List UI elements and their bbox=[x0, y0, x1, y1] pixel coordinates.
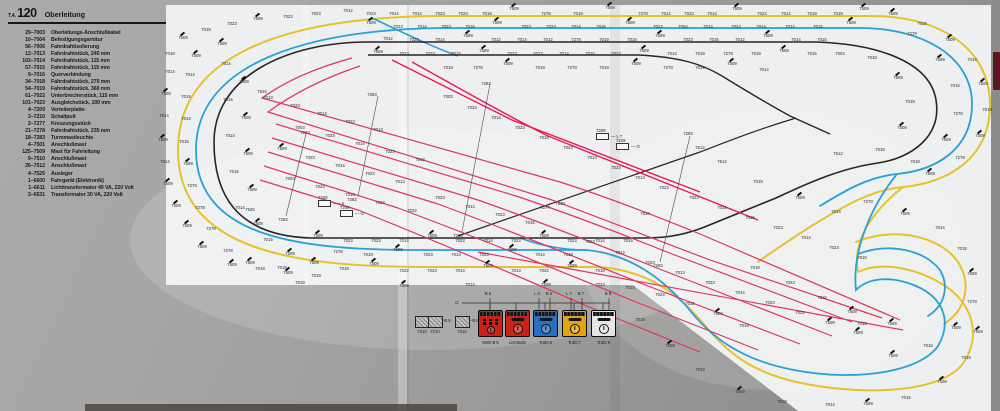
part-label: 7019 bbox=[695, 368, 705, 373]
part-label: 7278 bbox=[638, 12, 648, 17]
part-label: 7019 bbox=[295, 281, 305, 286]
part-label: 7015 bbox=[857, 256, 867, 261]
part-label: 7509 bbox=[639, 49, 649, 54]
part-label: 7283 bbox=[653, 264, 663, 269]
part-label: 7509 bbox=[945, 38, 955, 43]
part-label: 7014 bbox=[435, 38, 445, 43]
part-label: 7023 bbox=[785, 281, 795, 286]
part-label: 7023 bbox=[546, 25, 556, 30]
part-label: 7023 bbox=[290, 104, 300, 109]
part-label: 7013 bbox=[635, 176, 645, 181]
part-label: 7014 bbox=[221, 62, 231, 67]
part-label: 7014 bbox=[165, 70, 175, 75]
part-label: 7018 bbox=[777, 400, 787, 405]
part-label: 7509 bbox=[900, 212, 910, 217]
part-label: 7278 bbox=[333, 250, 343, 255]
part-label: 7019 bbox=[563, 253, 573, 258]
part-label: 7278 bbox=[907, 32, 917, 37]
part-label: 7019 bbox=[753, 180, 763, 185]
part-label: 7014 bbox=[735, 291, 745, 296]
part-label: 7023 bbox=[435, 196, 445, 201]
part-label: 7015 bbox=[229, 170, 239, 175]
part-label: 7509 bbox=[247, 188, 257, 193]
part-label: 7023 bbox=[829, 246, 839, 251]
part-label: 7015 bbox=[685, 302, 695, 307]
part-label: 7018 bbox=[867, 56, 877, 61]
part-label: 7023 bbox=[765, 301, 775, 306]
part-label: 7023 bbox=[283, 15, 293, 20]
part-label: 7283 bbox=[367, 93, 377, 98]
part-label: 7018 bbox=[961, 356, 971, 361]
part-label: 7509 bbox=[975, 134, 985, 139]
part-label: 7012 bbox=[491, 38, 501, 43]
part-label: 7509 bbox=[825, 321, 835, 326]
part-label: 7509 bbox=[853, 331, 863, 336]
part-label: 7278 bbox=[567, 66, 577, 71]
part-label: 7509 bbox=[241, 116, 251, 121]
part-label: 7023 bbox=[495, 213, 505, 218]
part-label: 7019 bbox=[751, 52, 761, 57]
part-label: 7278 bbox=[541, 12, 551, 17]
part-label: 7012 bbox=[343, 9, 353, 14]
part-label: 7023 bbox=[659, 186, 669, 191]
part-label: 7023 bbox=[343, 239, 353, 244]
part-label: 7023 bbox=[515, 126, 525, 131]
part-label: 7509 bbox=[492, 21, 502, 26]
part-label: 7278 bbox=[195, 206, 205, 211]
part-label: 7022 bbox=[399, 269, 409, 274]
part-label: 7018 bbox=[255, 267, 265, 272]
part-label: 7509 bbox=[217, 42, 227, 47]
part-label: 7512 bbox=[695, 146, 705, 151]
part-label: 7012 bbox=[785, 25, 795, 30]
part-label: 7012 bbox=[383, 37, 393, 42]
part-label: 7014 bbox=[185, 73, 195, 78]
part-label: 7018 bbox=[917, 22, 927, 27]
part-label: 7023 bbox=[731, 25, 741, 30]
part-label: 7509 bbox=[253, 17, 263, 22]
part-label: 7014 bbox=[355, 142, 365, 147]
part-label: 7014 bbox=[587, 156, 597, 161]
part-label: 7018 bbox=[833, 12, 843, 17]
part-label: 7019 bbox=[695, 66, 705, 71]
part-label: 7019 bbox=[635, 318, 645, 323]
part-label: 7509 bbox=[507, 248, 517, 253]
part-label: 7022 bbox=[407, 209, 417, 214]
part-label: 7023 bbox=[423, 253, 433, 258]
table-edge-shadow bbox=[85, 404, 457, 411]
part-label: 7014 bbox=[571, 25, 581, 30]
part-label: 7023 bbox=[683, 38, 693, 43]
part-label: 7509 bbox=[665, 344, 675, 349]
part-label: 7018 bbox=[750, 266, 760, 271]
part-label: 7509 bbox=[182, 224, 192, 229]
part-label: 7278 bbox=[967, 300, 977, 305]
part-label: 7509 bbox=[631, 62, 641, 67]
part-label: 7014 bbox=[465, 205, 475, 210]
part-label: 7509 bbox=[655, 34, 665, 39]
distributor-plate: 7209— O bbox=[616, 143, 640, 150]
part-label: 7509 bbox=[937, 380, 947, 385]
part-label: 7014 bbox=[455, 269, 465, 274]
distributor-part-number: 7209 bbox=[616, 138, 626, 143]
part-label: 7023 bbox=[705, 281, 715, 286]
distributor-plate: 7209— O bbox=[340, 210, 364, 217]
part-label: 7014 bbox=[717, 206, 727, 211]
part-label: 7013 bbox=[395, 180, 405, 185]
part-label: 7023 bbox=[385, 150, 395, 155]
part-label: 7019 bbox=[739, 324, 749, 329]
part-label: 7015 bbox=[451, 52, 461, 57]
part-label: 7509 bbox=[763, 34, 773, 39]
part-label: 7023 bbox=[375, 201, 385, 206]
part-label: 7509 bbox=[197, 245, 207, 250]
fold-crease bbox=[610, 5, 620, 411]
part-label: 7283 bbox=[300, 131, 310, 136]
part-label: 7509 bbox=[503, 62, 513, 67]
part-label: 7019 bbox=[695, 52, 705, 57]
part-label: 7023 bbox=[458, 12, 468, 17]
part-label: 7509 bbox=[313, 234, 323, 239]
part-label: 7023 bbox=[227, 22, 237, 27]
part-label: 7509 bbox=[978, 82, 988, 87]
part-label: 7023 bbox=[595, 283, 605, 288]
part-label: 7023 bbox=[305, 156, 315, 161]
part-label: 7014 bbox=[661, 12, 671, 17]
part-label: 7509 bbox=[158, 138, 168, 143]
part-label: 7278 bbox=[571, 38, 581, 43]
part-label: 7023 bbox=[585, 240, 595, 245]
part-label: 7509 bbox=[967, 272, 977, 277]
part-label: 7509 bbox=[366, 21, 376, 26]
part-label: 7277 bbox=[540, 206, 550, 211]
part-label: 7509 bbox=[973, 330, 983, 335]
part-label: 7019 bbox=[599, 66, 609, 71]
part-label: 7023 bbox=[455, 239, 465, 244]
part-label: 7525 bbox=[257, 90, 267, 95]
part-label: 7012 bbox=[735, 38, 745, 43]
part-label: 7019 bbox=[573, 12, 583, 17]
part-label: 7023 bbox=[773, 226, 783, 231]
part-label: 7509 bbox=[727, 62, 737, 67]
part-label: 7023 bbox=[653, 25, 663, 30]
part-label: 7509 bbox=[239, 80, 249, 85]
part-label: 7014 bbox=[756, 25, 766, 30]
part-label: 7015 bbox=[539, 136, 549, 141]
part-label: 7018 bbox=[165, 52, 175, 57]
part-label: 7278 bbox=[953, 112, 963, 117]
page-edge-mark bbox=[993, 52, 1000, 90]
part-label: 7014 bbox=[160, 160, 170, 165]
part-label: 7018 bbox=[982, 108, 992, 113]
distributor-wire-label: — O bbox=[355, 211, 364, 216]
part-label: 7022 bbox=[795, 311, 805, 316]
part-label: 7019 bbox=[807, 12, 817, 17]
part-label: 7283 bbox=[278, 218, 288, 223]
part-label: 7014 bbox=[335, 164, 345, 169]
part-label: 7525 bbox=[245, 208, 255, 213]
part-label: 7509 bbox=[795, 196, 805, 201]
part-label: 7014 bbox=[801, 236, 811, 241]
part-label: 7014 bbox=[181, 117, 191, 122]
part-label: 7023 bbox=[689, 196, 699, 201]
part-label: 7012 bbox=[543, 38, 553, 43]
part-label: 7509 bbox=[309, 261, 319, 266]
part-label: 7015 bbox=[807, 52, 817, 57]
part-label: 7509 bbox=[951, 326, 961, 331]
part-label: 7023 bbox=[311, 12, 321, 17]
distributor-part-number: 7209 bbox=[596, 128, 606, 133]
part-label: 7509 bbox=[253, 222, 263, 227]
part-label: 7015 bbox=[817, 296, 827, 301]
part-label: 7019 bbox=[363, 253, 373, 258]
part-label: 7023 bbox=[507, 52, 517, 57]
part-label: 7014 bbox=[707, 12, 717, 17]
part-label: 7019 bbox=[339, 267, 349, 272]
part-label: 7015 bbox=[957, 247, 967, 252]
part-label: 7283 bbox=[683, 132, 693, 137]
part-label: 7014 bbox=[831, 210, 841, 215]
part-label: 7278 bbox=[187, 184, 197, 189]
part-label: 7509 bbox=[846, 21, 856, 26]
part-label: 7013 bbox=[263, 96, 273, 101]
part-label: 7004 bbox=[678, 25, 688, 30]
part-label: 7015 bbox=[525, 221, 535, 226]
distributor-wire-label: — O bbox=[631, 144, 640, 149]
part-label: 7509 bbox=[859, 7, 869, 12]
part-label: 7014 bbox=[559, 52, 569, 57]
part-label: 7014 bbox=[667, 52, 677, 57]
part-label: 7509 bbox=[735, 390, 745, 395]
part-label: 7018 bbox=[910, 160, 920, 165]
part-label: 7015 bbox=[901, 396, 911, 401]
part-label: 7019 bbox=[443, 66, 453, 71]
part-label: 7013 bbox=[415, 158, 425, 163]
part-label: 7023 bbox=[427, 269, 437, 274]
part-label: 7015 bbox=[181, 95, 191, 100]
part-label: 7509 bbox=[541, 283, 551, 288]
part-label: 7003 bbox=[443, 95, 453, 100]
part-label: 7283 bbox=[453, 234, 463, 239]
part-label: 7013 bbox=[373, 128, 383, 133]
part-label: 7509 bbox=[897, 126, 907, 131]
part-label: 7509 bbox=[779, 49, 789, 54]
part-label: 7015 bbox=[465, 25, 475, 30]
part-label: 7509 bbox=[183, 162, 193, 167]
part-label: 7023 bbox=[655, 293, 665, 298]
part-label: 7509 bbox=[399, 284, 409, 289]
part-label: 7018 bbox=[875, 148, 885, 153]
part-label: 7509 bbox=[935, 58, 945, 63]
part-label: 7023 bbox=[684, 12, 694, 17]
part-label: 7023 bbox=[345, 120, 355, 125]
part-label: 7509 bbox=[567, 264, 577, 269]
part-label: 7510 bbox=[640, 212, 650, 217]
part-label: 7023 bbox=[479, 253, 489, 258]
part-label: 7509 bbox=[479, 49, 489, 54]
part-label: 7014 bbox=[389, 12, 399, 17]
part-label: 7509 bbox=[625, 21, 635, 26]
part-label: 7509 bbox=[863, 402, 873, 407]
part-label: 7014 bbox=[825, 403, 835, 408]
part-label: 7278 bbox=[206, 227, 216, 232]
part-label: 7509 bbox=[888, 12, 898, 17]
part-label: 7014 bbox=[615, 251, 625, 256]
part-label: 7509 bbox=[369, 262, 379, 267]
part-label: 7014 bbox=[759, 68, 769, 73]
part-label: 7015 bbox=[596, 25, 606, 30]
part-label: 7278 bbox=[663, 66, 673, 71]
part-label: 7014 bbox=[417, 25, 427, 30]
part-label: 7509 bbox=[243, 152, 253, 157]
part-label: 7015 bbox=[813, 25, 823, 30]
part-label: 7509 bbox=[178, 36, 188, 41]
part-label: 7014 bbox=[159, 114, 169, 119]
distributor-box bbox=[318, 200, 331, 207]
part-label: 7014 bbox=[412, 12, 422, 17]
distributor-part-number: 7209 bbox=[318, 195, 328, 200]
part-label: 7510 bbox=[555, 202, 565, 207]
part-label: 7019 bbox=[311, 274, 321, 279]
part-label: 7509 bbox=[893, 76, 903, 81]
part-label: 7509 bbox=[463, 34, 473, 39]
part-label: 7015 bbox=[817, 38, 827, 43]
distributor-box bbox=[596, 133, 609, 140]
part-label: 7509 bbox=[191, 54, 201, 59]
part-label: 7014 bbox=[781, 12, 791, 17]
part-label: 7015 bbox=[745, 216, 755, 221]
part-label: 7023 bbox=[611, 52, 621, 57]
part-label: 7014 bbox=[491, 116, 501, 121]
track-plan bbox=[0, 0, 1000, 411]
part-label: 7509 bbox=[925, 172, 935, 177]
part-label: 7023 bbox=[425, 52, 435, 57]
part-label: 7014 bbox=[451, 253, 461, 258]
part-label: 7014 bbox=[703, 25, 713, 30]
part-label: 7278 bbox=[863, 200, 873, 205]
part-label: 7023 bbox=[757, 12, 767, 17]
part-label: 7018 bbox=[277, 266, 287, 271]
part-label: 7015 bbox=[585, 52, 595, 57]
part-label: 7509 bbox=[732, 7, 742, 12]
part-label: 7509 bbox=[227, 263, 237, 268]
distributor-part-number: 7209 bbox=[340, 205, 350, 210]
part-label: 7014 bbox=[399, 239, 409, 244]
part-label: 7509 bbox=[427, 234, 437, 239]
part-label: 7014 bbox=[967, 58, 977, 63]
part-label: 7014 bbox=[235, 206, 245, 211]
part-label: 7023 bbox=[435, 12, 445, 17]
part-label: 7014 bbox=[465, 283, 475, 288]
part-label: 7023 bbox=[393, 25, 403, 30]
part-label: 7015 bbox=[627, 38, 637, 43]
part-label: 7278 bbox=[723, 52, 733, 57]
part-label: 7013 bbox=[675, 271, 685, 276]
part-label: 7019 bbox=[595, 269, 605, 274]
part-label: 7283 bbox=[481, 82, 491, 87]
part-label: 7509 bbox=[161, 92, 171, 97]
part-label: 7278 bbox=[955, 156, 965, 161]
part-label: 7512 bbox=[717, 160, 727, 165]
part-label: 7023 bbox=[315, 185, 325, 190]
part-label: 7014 bbox=[625, 286, 635, 291]
part-label: 7509 bbox=[163, 182, 173, 187]
part-label: 7023 bbox=[441, 25, 451, 30]
part-label: 7015 bbox=[263, 238, 273, 243]
part-label: 7004 bbox=[835, 52, 845, 57]
part-label: 7019 bbox=[599, 38, 609, 43]
part-label: 7023 bbox=[409, 38, 419, 43]
part-label: 7509 bbox=[509, 7, 519, 12]
part-label: 7512 bbox=[833, 152, 843, 157]
part-label: 7015 bbox=[179, 140, 189, 145]
part-label: 7014 bbox=[535, 253, 545, 258]
part-label: 7014 bbox=[595, 239, 605, 244]
part-label: 7014 bbox=[791, 38, 801, 43]
part-label: 7023 bbox=[371, 239, 381, 244]
part-label: 7015 bbox=[623, 239, 633, 244]
part-label: 7014 bbox=[483, 239, 493, 244]
part-label: 7014 bbox=[517, 38, 527, 43]
part-label: 7023 bbox=[467, 106, 477, 111]
part-label: 7023 bbox=[365, 172, 375, 177]
part-label: 7023 bbox=[611, 166, 621, 171]
part-label: 7509 bbox=[245, 261, 255, 266]
part-label: 7003 bbox=[285, 177, 295, 182]
part-label: 7509 bbox=[888, 354, 898, 359]
part-label: 7509 bbox=[373, 50, 383, 55]
part-label: 7023 bbox=[399, 52, 409, 57]
distributor-box bbox=[340, 210, 353, 217]
part-label: 7013 bbox=[511, 269, 521, 274]
part-label: 7018 bbox=[905, 100, 915, 105]
part-label: 7509 bbox=[539, 234, 549, 239]
part-label: 7509 bbox=[283, 271, 293, 276]
part-label: 7509 bbox=[171, 204, 181, 209]
part-label: 7023 bbox=[521, 25, 531, 30]
part-label: 7015 bbox=[223, 98, 233, 103]
part-label: 7023 bbox=[567, 239, 577, 244]
catalog-page: T.4. 120 Oberleitung 29–7003Oberleitungs… bbox=[0, 0, 1000, 411]
part-label: 7014 bbox=[935, 226, 945, 231]
part-label: 7014 bbox=[225, 134, 235, 139]
part-label: 7509 bbox=[285, 252, 295, 257]
part-label: 7016 bbox=[709, 38, 719, 43]
part-label: 7022 bbox=[539, 269, 549, 274]
part-label: 7283 bbox=[347, 198, 357, 203]
part-label: 7018 bbox=[201, 28, 211, 33]
part-label: 7509 bbox=[605, 6, 615, 11]
part-label: 7509 bbox=[277, 147, 287, 152]
part-label: 7023 bbox=[325, 134, 335, 139]
distributor-box bbox=[616, 143, 629, 150]
part-label: 7509 bbox=[941, 138, 951, 143]
part-label: 7015 bbox=[950, 84, 960, 89]
part-label: 7023 bbox=[563, 146, 573, 151]
part-label: 7509 bbox=[393, 248, 403, 253]
part-label: 7019 bbox=[535, 66, 545, 71]
part-label: 7014 bbox=[317, 112, 327, 117]
part-label: 7509 bbox=[713, 312, 723, 317]
part-label: 7019 bbox=[482, 12, 492, 17]
part-label: 7023 bbox=[533, 52, 543, 57]
part-label: 7018 bbox=[923, 344, 933, 349]
part-label: 7509 bbox=[887, 322, 897, 327]
part-label: 7509 bbox=[483, 264, 493, 269]
part-label: 7278 bbox=[473, 66, 483, 71]
part-label: 7509 bbox=[847, 310, 857, 315]
part-label: 7278 bbox=[223, 249, 233, 254]
